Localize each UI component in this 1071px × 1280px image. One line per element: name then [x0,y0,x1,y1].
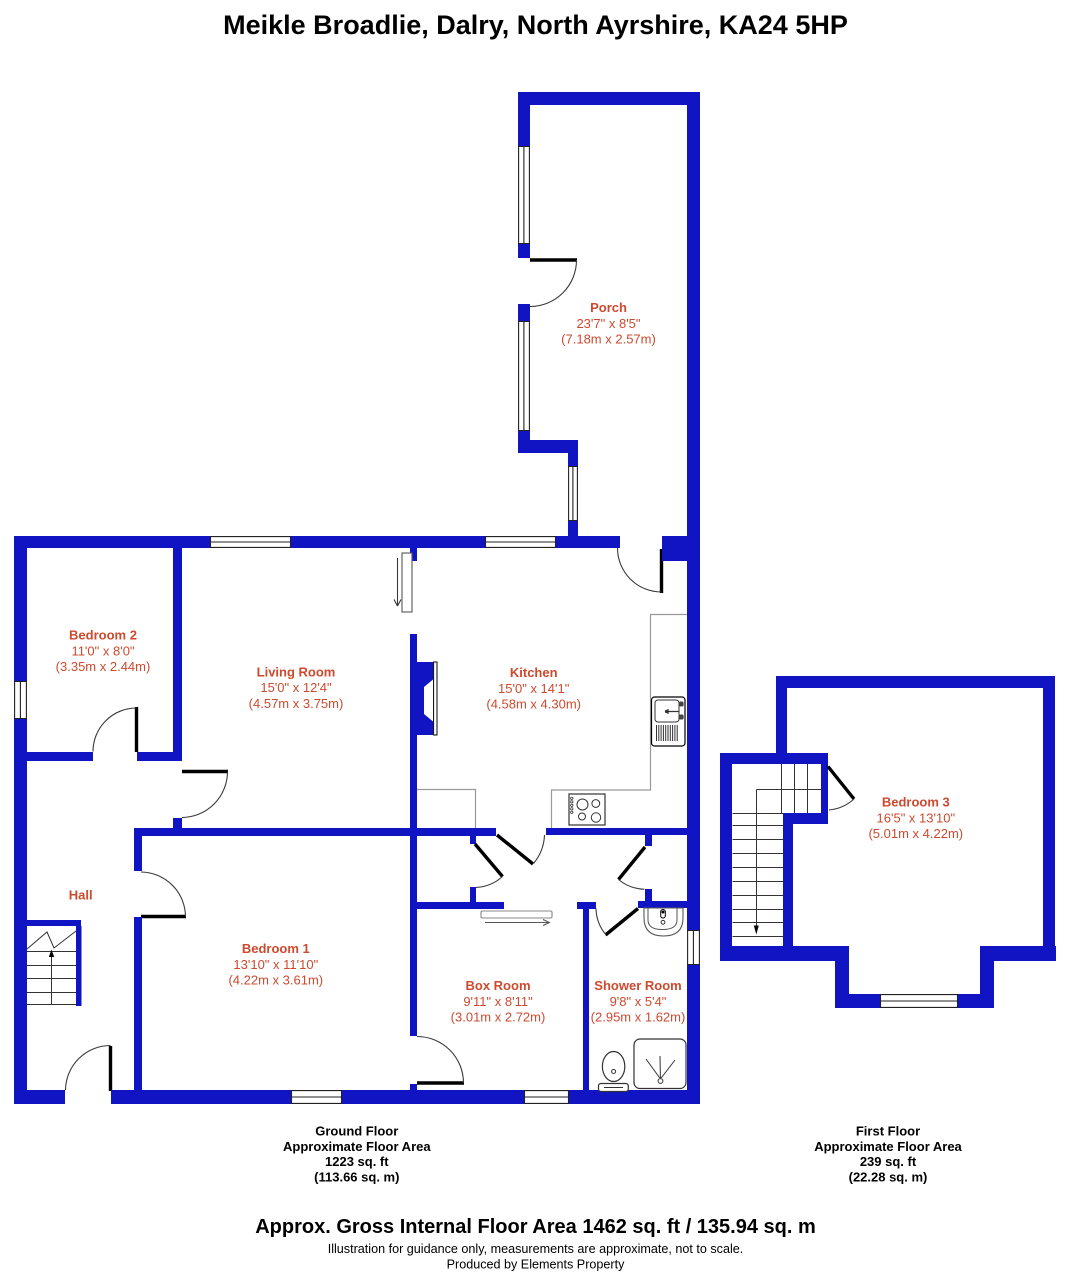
svg-text:Shower Room: Shower Room [594,978,681,993]
svg-text:9'11" x 8'11": 9'11" x 8'11" [463,994,533,1009]
svg-text:Kitchen: Kitchen [510,665,558,680]
svg-text:(3.35m x 2.44m): (3.35m x 2.44m) [56,659,151,674]
svg-text:Porch: Porch [590,300,627,315]
svg-text:Bedroom 1: Bedroom 1 [242,941,310,956]
svg-text:Meikle Broadlie, Dalry, North: Meikle Broadlie, Dalry, North Ayrshire, … [223,10,848,40]
svg-text:9'8" x 5'4": 9'8" x 5'4" [610,994,667,1009]
svg-text:Box Room: Box Room [466,978,531,993]
svg-text:13'10" x 11'10": 13'10" x 11'10" [233,957,318,972]
svg-text:15'0" x 14'1": 15'0" x 14'1" [498,681,570,696]
svg-text:First Floor: First Floor [856,1123,920,1138]
svg-text:(2.95m x 1.62m): (2.95m x 1.62m) [591,1010,686,1025]
svg-text:Approximate Floor Area: Approximate Floor Area [283,1139,431,1154]
svg-text:(113.66 sq. m): (113.66 sq. m) [314,1170,399,1185]
svg-text:1223 sq. ft: 1223 sq. ft [325,1154,389,1169]
svg-text:(4.22m x 3.61m): (4.22m x 3.61m) [228,973,323,988]
svg-text:Living Room: Living Room [257,664,336,679]
svg-text:(3.01m x 2.72m): (3.01m x 2.72m) [451,1010,546,1025]
svg-text:Bedroom 3: Bedroom 3 [882,795,950,810]
svg-text:239 sq. ft: 239 sq. ft [860,1154,917,1169]
svg-text:Illustration for guidance only: Illustration for guidance only, measurem… [328,1242,744,1256]
svg-text:(22.28 sq. m): (22.28 sq. m) [849,1170,928,1185]
svg-text:(5.01m x 4.22m): (5.01m x 4.22m) [868,826,963,841]
svg-text:(4.57m x 3.75m): (4.57m x 3.75m) [249,696,344,711]
svg-text:Bedroom 2: Bedroom 2 [69,628,137,643]
svg-text:11'0" x 8'0": 11'0" x 8'0" [71,643,134,658]
svg-text:Approx. Gross Internal Floor A: Approx. Gross Internal Floor Area 1462 s… [255,1216,816,1238]
svg-text:Hall: Hall [69,888,93,903]
svg-text:15'0" x 12'4": 15'0" x 12'4" [260,680,332,695]
svg-text:23'7" x 8'5": 23'7" x 8'5" [576,316,640,331]
svg-text:Ground Floor: Ground Floor [315,1123,398,1138]
svg-text:Approximate Floor Area: Approximate Floor Area [814,1139,962,1154]
svg-text:(4.58m x 4.30m): (4.58m x 4.30m) [486,697,581,712]
svg-text:(7.18m x 2.57m): (7.18m x 2.57m) [561,332,656,347]
svg-text:Produced by Elements Property: Produced by Elements Property [447,1258,626,1272]
svg-text:16'5" x 13'10": 16'5" x 13'10" [877,810,956,825]
